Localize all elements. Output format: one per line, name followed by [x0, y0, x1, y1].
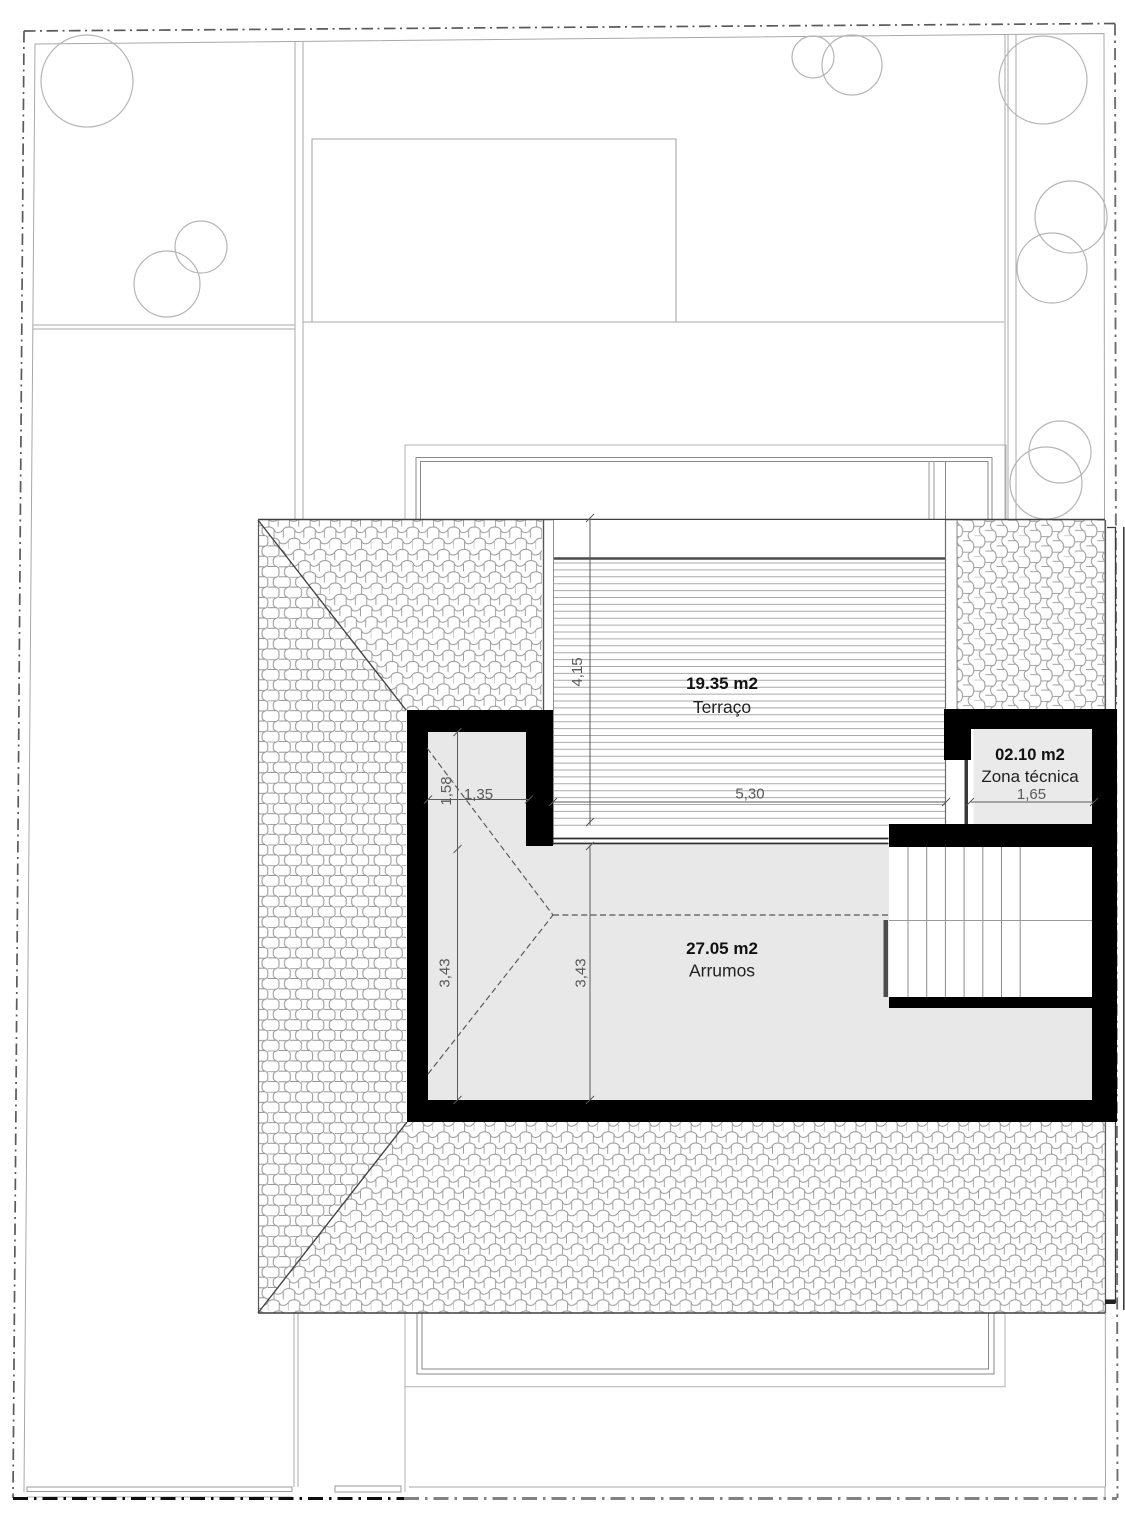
svg-text:Zona técnica: Zona técnica — [981, 767, 1079, 786]
svg-text:3,43: 3,43 — [573, 958, 590, 987]
svg-text:5,30: 5,30 — [735, 786, 764, 803]
svg-text:27.05 m2: 27.05 m2 — [686, 939, 758, 958]
svg-text:4,15: 4,15 — [569, 657, 586, 686]
svg-text:Terraço: Terraço — [693, 697, 751, 717]
svg-text:19.35 m2: 19.35 m2 — [686, 674, 758, 693]
svg-text:Arrumos: Arrumos — [689, 961, 755, 981]
svg-text:1,65: 1,65 — [1017, 786, 1046, 803]
svg-text:1,35: 1,35 — [464, 786, 493, 803]
svg-text:02.10 m2: 02.10 m2 — [995, 746, 1065, 764]
svg-text:1,58: 1,58 — [438, 776, 455, 805]
svg-text:3,43: 3,43 — [437, 958, 454, 987]
